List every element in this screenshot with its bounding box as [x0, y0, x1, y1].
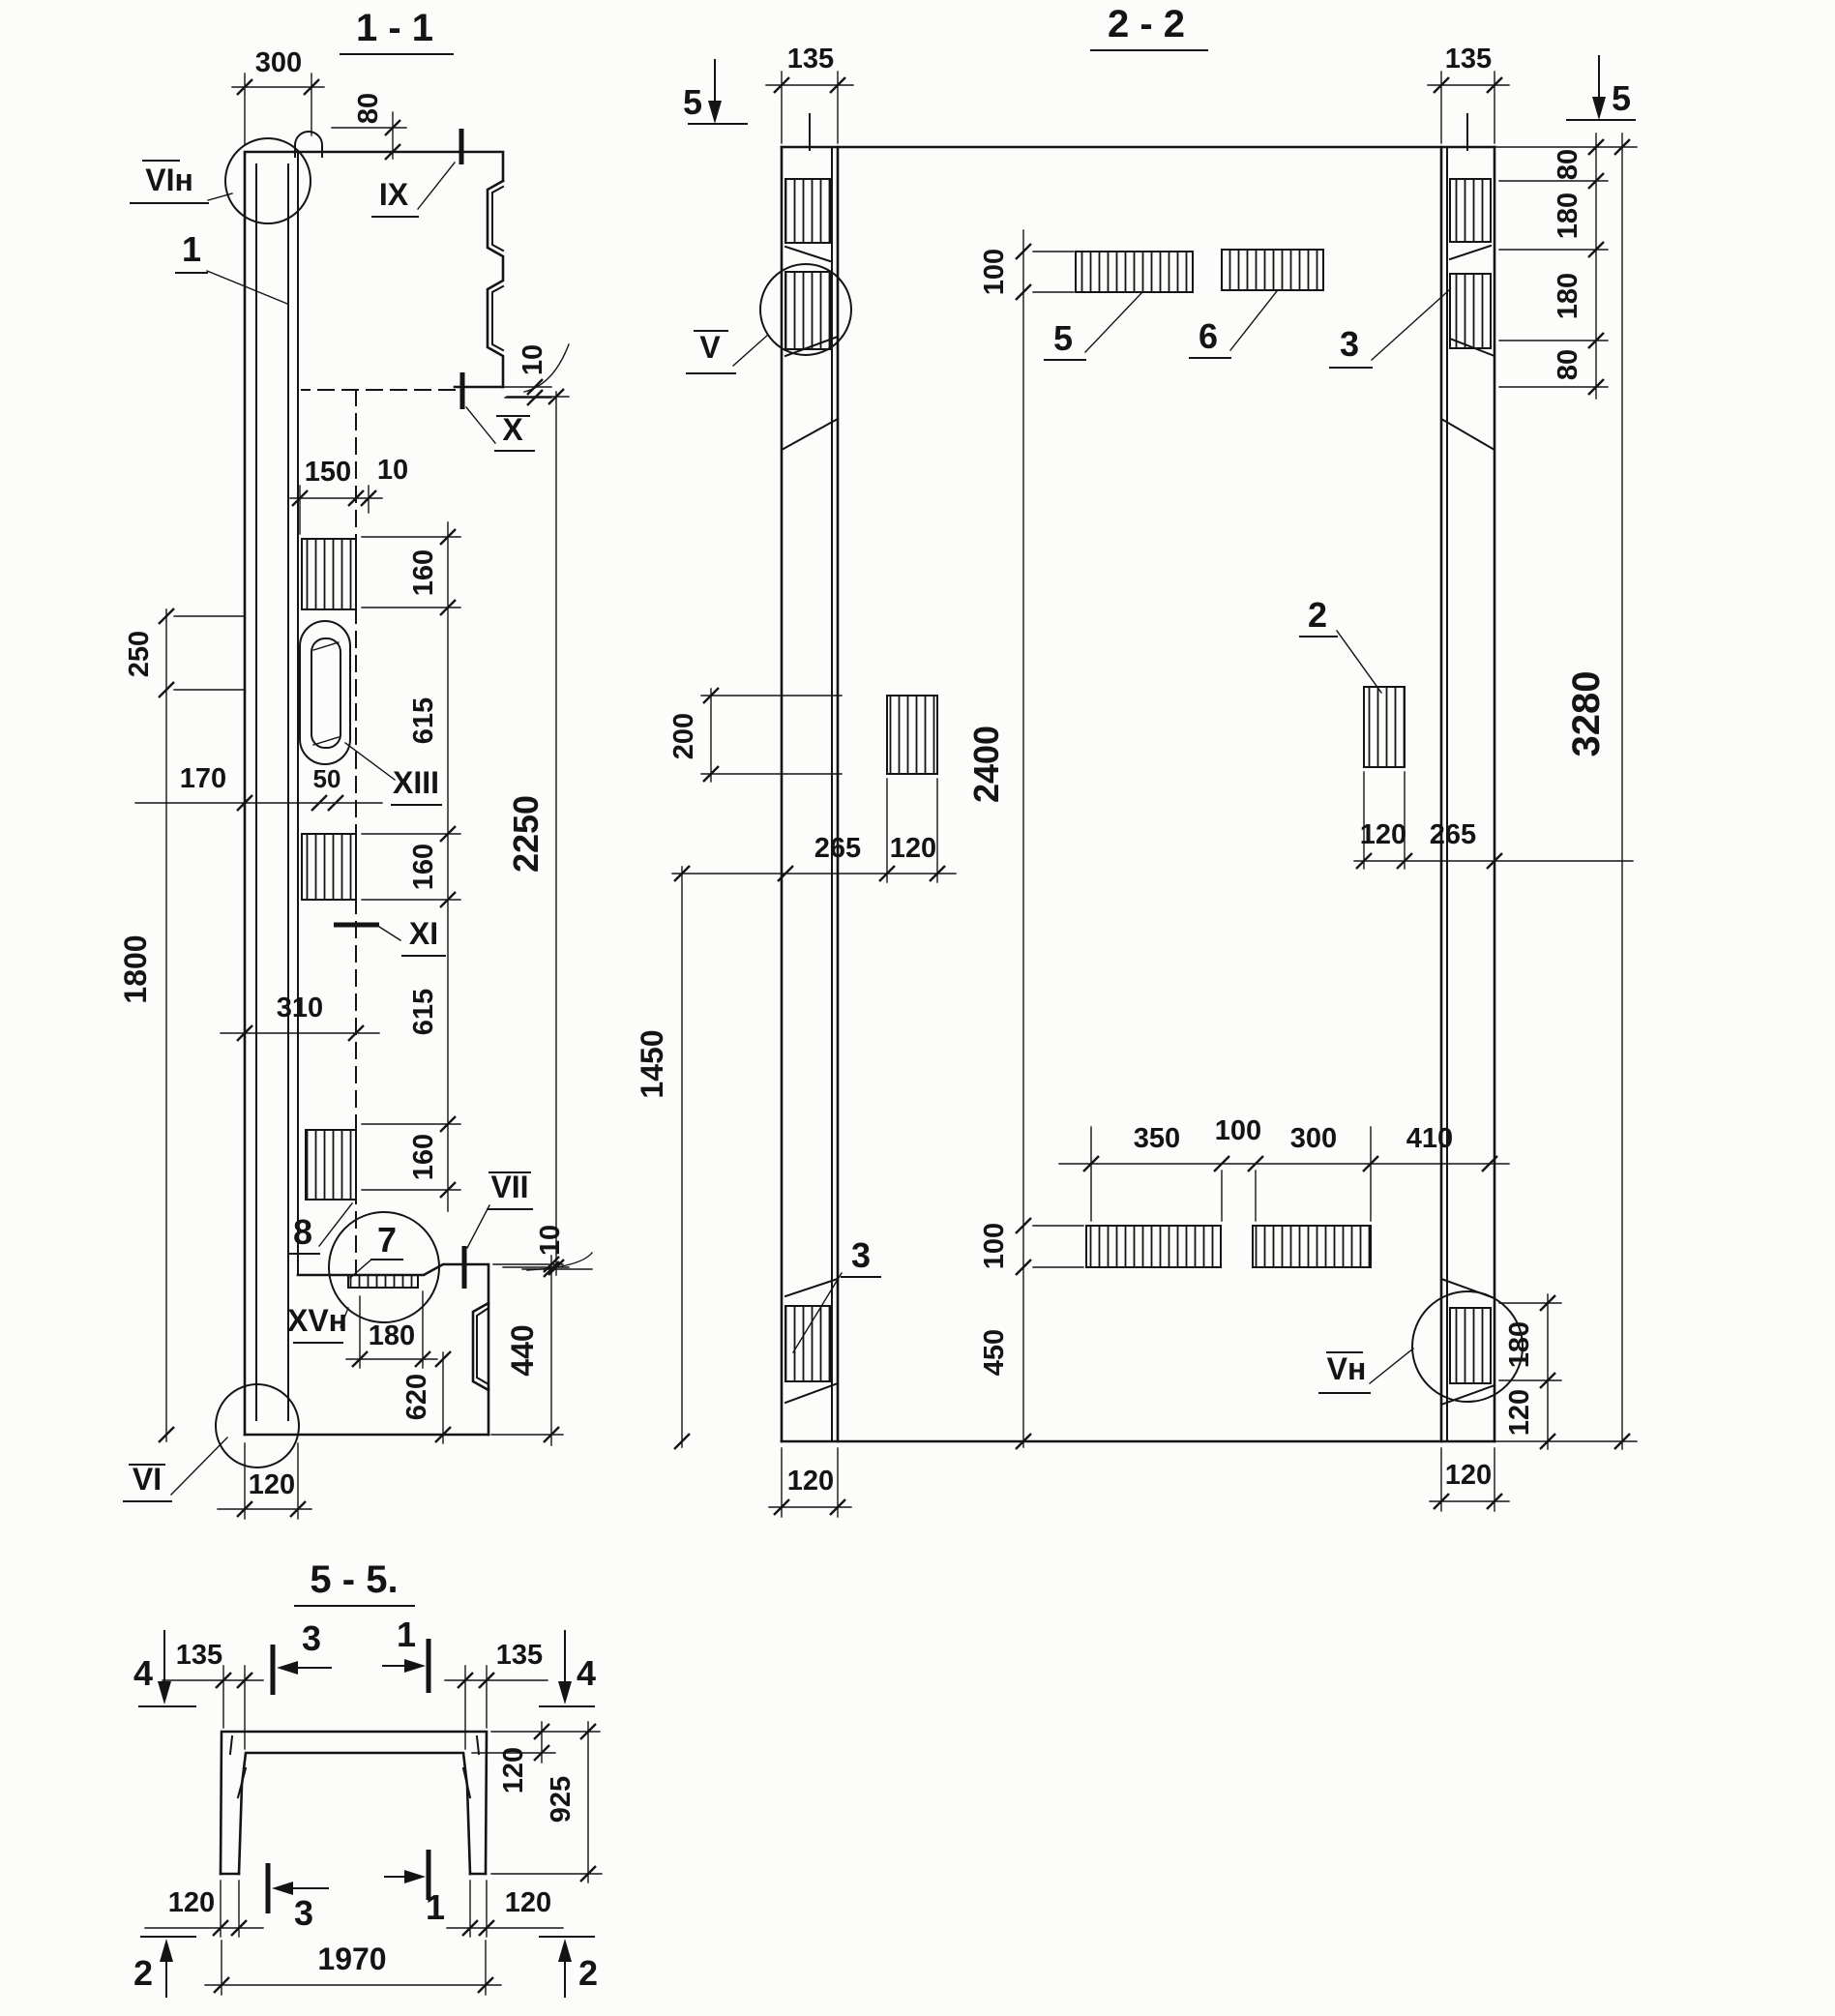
dim-label: 135 [787, 44, 834, 74]
callout-XI: XI [379, 916, 445, 956]
section-arrow-label: 5 [1612, 78, 1631, 118]
section-5-5: 5 - 5. 4 4 1 [133, 1558, 602, 1997]
callout-label: 8 [293, 1212, 312, 1252]
dim-1450: 1450 [635, 866, 690, 1449]
section-arrow-label: 2 [133, 1953, 153, 1993]
callout-label: 2 [1308, 595, 1327, 635]
section-2-2: 2 - 2 [635, 3, 1637, 1517]
dim-label: 200 [668, 713, 699, 759]
dim-label: 180 [1553, 273, 1583, 319]
dim-120-bottom-left: 120 [145, 1881, 263, 1937]
callout-1: 1 [176, 229, 287, 304]
callout-XVn: XVн [287, 1303, 348, 1343]
dim-150-10: 150 10 [290, 455, 408, 534]
callout-label: 7 [377, 1220, 397, 1260]
dim-label: 1800 [118, 934, 153, 1003]
dim-label: 615 [408, 697, 439, 744]
callout-2: 2 [1300, 595, 1381, 693]
section-arrow-label: 3 [294, 1893, 313, 1933]
dim-label: 450 [979, 1329, 1010, 1376]
callout-label: IX [379, 177, 409, 212]
dim-chain-plates: 160 615 160 615 160 [362, 522, 460, 1211]
callout-7: 7 [350, 1220, 402, 1278]
dim-120: 120 [218, 1443, 311, 1519]
section-arrow-label: 3 [302, 1618, 321, 1658]
callout-label: 6 [1199, 316, 1218, 356]
embed-plate-right-bottom [1450, 1308, 1491, 1383]
dim-label: 1970 [317, 1942, 386, 1976]
dim-label: 615 [408, 989, 439, 1035]
dim-120-below-right: 120 [1430, 1448, 1509, 1511]
dim-1970: 1970 [205, 1941, 501, 1995]
dim-3280: 3280 [1565, 133, 1630, 1449]
dim-label: 10 [535, 1225, 566, 1256]
dim-label: 100 [979, 249, 1010, 295]
dim-label: 135 [176, 1640, 222, 1671]
dim-label: 300 [255, 47, 302, 78]
dim-label: 135 [496, 1640, 543, 1671]
section-arrow-label: 2 [578, 1953, 598, 1993]
callout-Vn: Vн [1319, 1349, 1413, 1393]
section-arrow-5-left: 5 [683, 60, 747, 124]
section-arrow-3-bottom: 3 [268, 1863, 328, 1933]
section-arrow-2-right: 2 [540, 1937, 598, 1997]
bottom-bar-left [1086, 1226, 1221, 1267]
embed-plate-3 [306, 1130, 356, 1200]
dim-label: 925 [546, 1776, 577, 1823]
dim-label: 180 [369, 1320, 415, 1351]
section-arrow-label: 4 [133, 1653, 153, 1693]
section-arrow-3-top: 3 [273, 1618, 331, 1695]
dim-label: 265 [1430, 819, 1476, 850]
section-2-2-title: 2 - 2 [1108, 3, 1185, 45]
callout-label: XVн [287, 1303, 347, 1338]
dim-label: 80 [1553, 349, 1583, 380]
callout-V: V [687, 330, 768, 373]
section-arrow-4-right: 4 [540, 1631, 596, 1706]
callout-VII: VII [467, 1170, 532, 1248]
callout-IX: IX [372, 163, 455, 217]
embed-plate-1 [302, 539, 356, 609]
dim-label: 180 [1504, 1321, 1535, 1368]
mid-plate-right [1364, 687, 1405, 767]
dim-label: 80 [1553, 149, 1583, 180]
anchor-bar-6 [1222, 250, 1323, 290]
dim-265-120-left: 265 120 [672, 779, 956, 882]
dim-label: 135 [1445, 44, 1492, 74]
dim-440: 440 [491, 1256, 563, 1445]
embed-plate-right-mid [1450, 274, 1491, 348]
dim-120-flange: 120 [472, 1722, 600, 1794]
dim-620: 620 [401, 1351, 451, 1443]
dim-80: 80 [332, 93, 406, 160]
dim-chain-right-bottom: 180 120 [1499, 1294, 1561, 1449]
section-arrow-label: 1 [397, 1615, 416, 1654]
dim-label: 300 [1290, 1123, 1337, 1154]
lifting-slot [300, 621, 350, 764]
dim-label: 120 [249, 1469, 295, 1500]
panel-outline-1-1 [245, 132, 503, 1435]
dim-label: 10 [518, 344, 548, 375]
dim-chain-central: 100 2400 100 450 [966, 230, 1083, 1449]
dim-300: 300 [232, 47, 324, 145]
dim-label: 50 [313, 764, 341, 793]
dim-label: 80 [353, 93, 384, 124]
section-arrow-label: 4 [577, 1653, 596, 1693]
callout-label: VII [490, 1170, 528, 1204]
dim-label: 170 [180, 763, 226, 794]
callout-X: X [466, 407, 534, 451]
callout-label: VI [133, 1462, 162, 1497]
dim-250-1800: 250 1800 [118, 608, 244, 1442]
callout-label: Vн [1327, 1351, 1367, 1386]
dim-label: 150 [305, 457, 351, 488]
channel-profile [221, 1732, 487, 1874]
dim-label: 120 [498, 1747, 529, 1794]
section-arrow-1-bottom: 1 [385, 1850, 445, 1927]
dim-120-below-left: 120 [769, 1448, 851, 1517]
callout-label: VIн [145, 163, 193, 197]
callout-label: 3 [851, 1235, 871, 1275]
dim-label: 120 [1504, 1389, 1535, 1436]
section-5-5-title: 5 - 5. [310, 1558, 398, 1601]
structural-drawing: 1 - 1 [0, 0, 1835, 2016]
dim-label: 2250 [506, 795, 546, 873]
dim-label: 160 [408, 549, 439, 596]
embed-plate-left-mid [785, 272, 830, 349]
embed-plate-2 [302, 834, 356, 900]
dim-label: 350 [1134, 1123, 1180, 1154]
dim-label: 440 [505, 1324, 540, 1376]
dim-label: 10 [377, 455, 408, 486]
drawing-sheet: 1 - 1 [0, 0, 1835, 2016]
callout-XIII: XIII [345, 743, 441, 805]
dim-label: 120 [505, 1887, 551, 1918]
dim-label: 250 [124, 631, 155, 677]
dim-170-50: 170 50 [135, 763, 382, 811]
dim-label: 265 [814, 833, 861, 864]
dim-10-bottom: 10 [522, 1225, 592, 1277]
embed-plate-left-bottom [785, 1306, 830, 1381]
detail-7-hatch-strip [348, 1275, 418, 1288]
embed-plate-right-top [1450, 179, 1491, 242]
callout-label: 3 [1340, 324, 1359, 364]
mid-plate-left [887, 696, 937, 774]
dim-label: 100 [1215, 1115, 1261, 1146]
section-arrow-5-right: 5 [1567, 56, 1635, 120]
dim-925: 925 [491, 1722, 602, 1883]
section-arrow-2-left: 2 [133, 1937, 195, 1997]
dim-label: 180 [1553, 193, 1583, 239]
callout-label: XIII [393, 765, 439, 800]
dim-label: 410 [1406, 1123, 1453, 1154]
dim-label: 160 [408, 1134, 439, 1180]
dim-label: 3280 [1565, 671, 1608, 757]
section-arrow-1-top: 1 [383, 1615, 429, 1693]
dim-label: 310 [277, 993, 323, 1023]
dim-chain-right-top: 80 180 180 80 [1499, 133, 1608, 399]
callout-6: 6 [1190, 291, 1277, 358]
dim-120-bottom-right: 120 [447, 1881, 563, 1937]
callout-3-right: 3 [1330, 290, 1449, 368]
dim-2250: 2250 [503, 389, 569, 1275]
callout-VI: VI [124, 1438, 227, 1501]
dim-label: 120 [1445, 1460, 1492, 1491]
dim-label: 120 [890, 833, 936, 864]
dim-180: 180 [346, 1291, 437, 1368]
callout-label: V [699, 330, 721, 365]
dim-label: 620 [401, 1374, 432, 1420]
anchor-bar-5 [1076, 252, 1193, 292]
dim-label: 120 [1360, 819, 1406, 850]
dim-label: 120 [168, 1887, 215, 1918]
callout-5: 5 [1045, 293, 1141, 360]
callout-label: 5 [1053, 318, 1073, 358]
section-1-1-title: 1 - 1 [356, 7, 433, 49]
callout-VIn: VIн [131, 161, 232, 203]
section-arrow-label: 5 [683, 82, 702, 122]
callout-label: XI [409, 916, 438, 951]
dim-label: 1450 [635, 1029, 669, 1098]
callout-label: X [502, 412, 523, 447]
dim-label: 100 [979, 1223, 1010, 1269]
section-1-1: 1 - 1 [118, 7, 592, 1519]
embed-plate-left-top [785, 179, 830, 243]
dim-200: 200 [668, 688, 842, 782]
dim-label: 2400 [966, 726, 1006, 803]
bottom-bar-right [1253, 1226, 1371, 1267]
dim-label: 160 [408, 844, 439, 890]
dim-label: 120 [787, 1466, 834, 1497]
callout-label: 1 [182, 229, 201, 269]
